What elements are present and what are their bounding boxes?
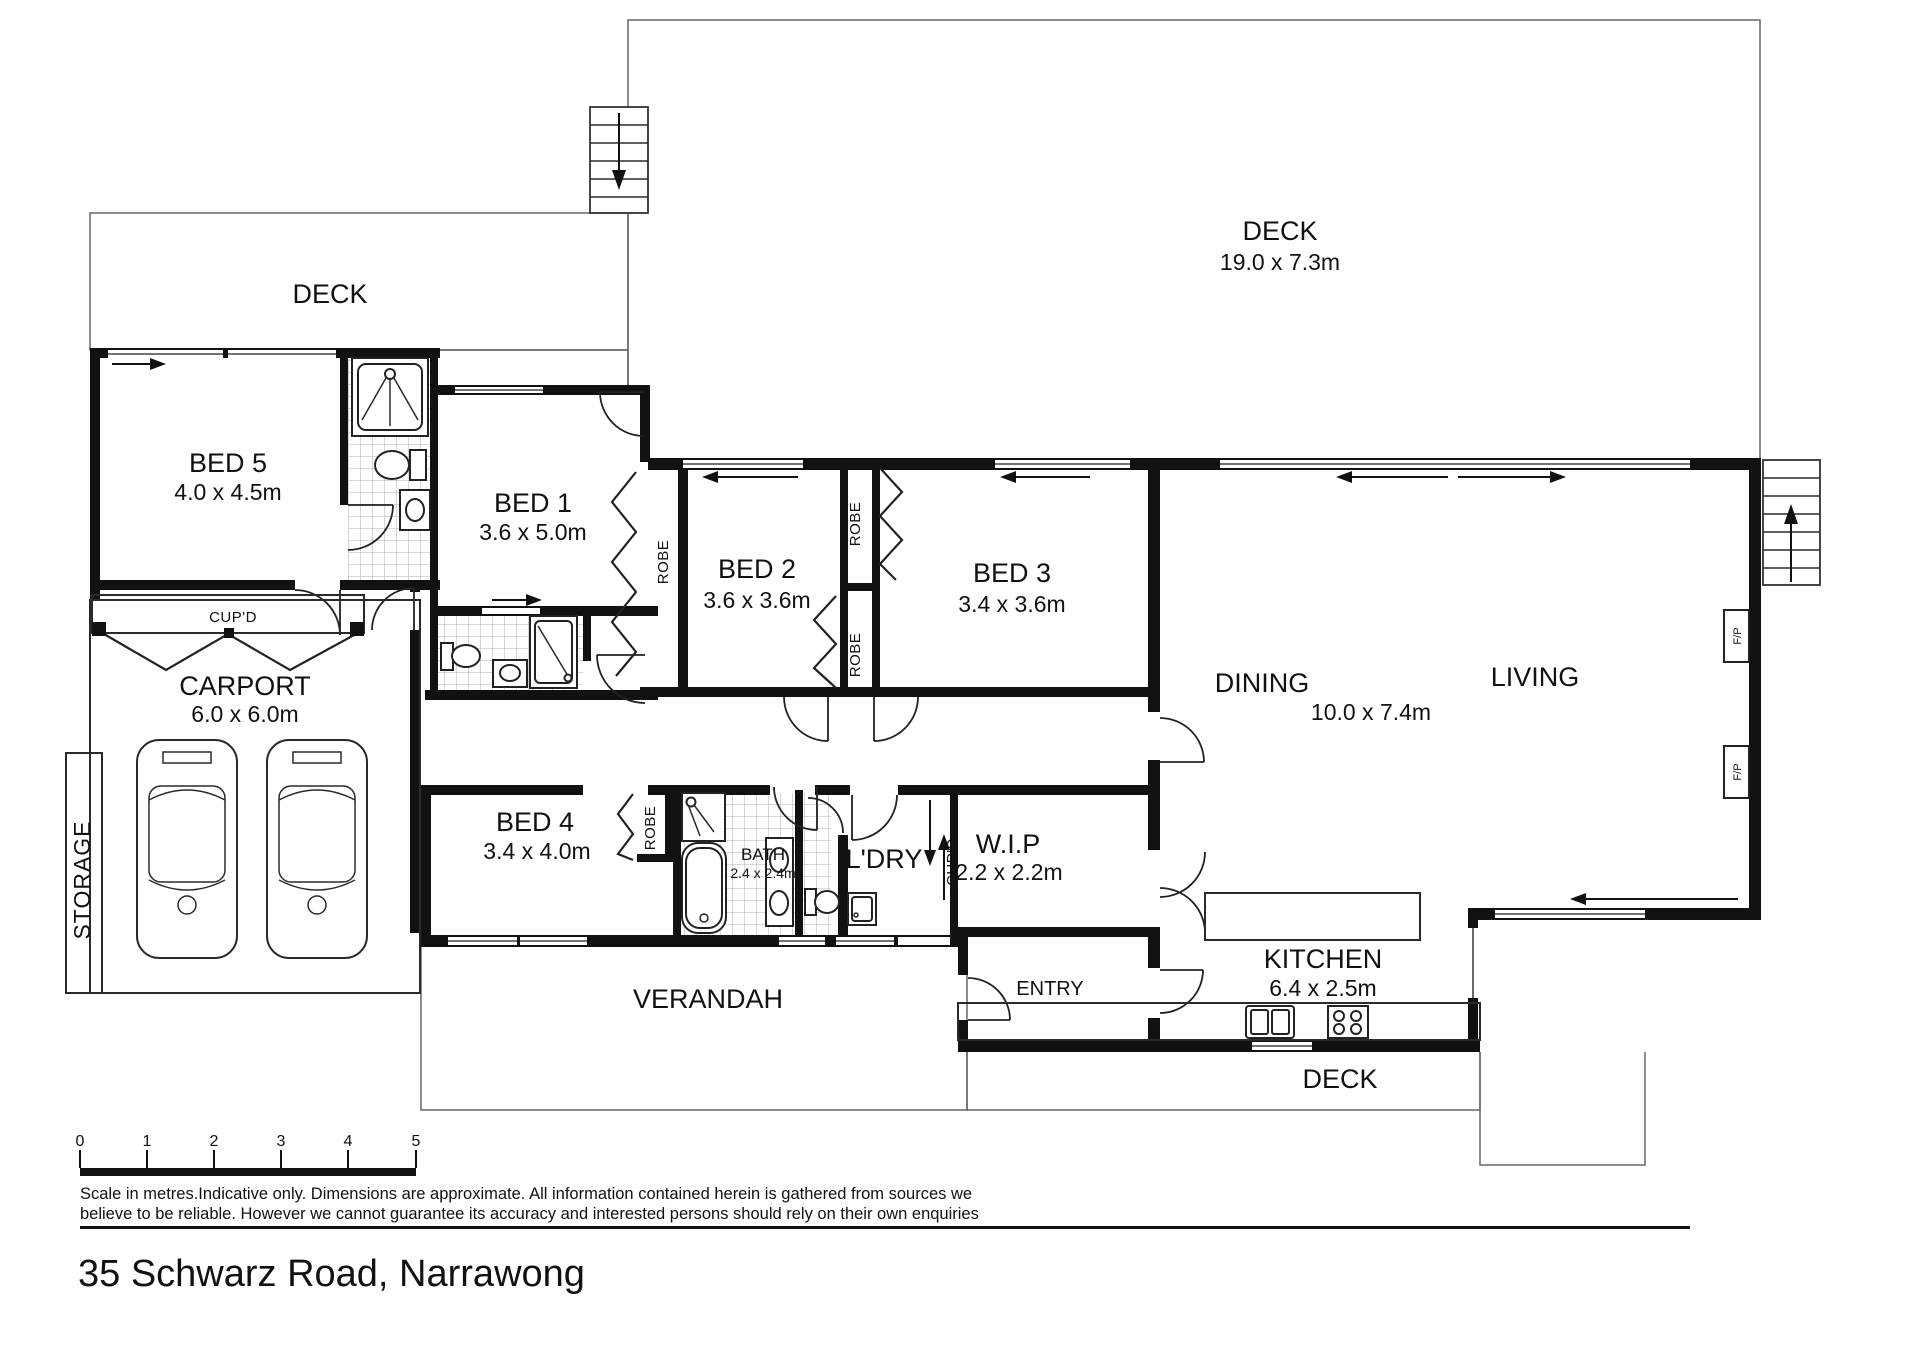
bath-label: BATH <box>741 845 785 864</box>
deck-main-label: DECK <box>1242 216 1317 246</box>
carport <box>66 595 420 993</box>
storage-label: STORAGE <box>69 820 95 939</box>
vanity <box>400 490 430 530</box>
living-label: LIVING <box>1491 662 1580 692</box>
laundry-sink <box>848 893 876 925</box>
scale-tick-5: 5 <box>412 1133 421 1150</box>
verandah-label: VERANDAH <box>633 984 783 1014</box>
toilet <box>441 643 480 670</box>
stove <box>1328 1006 1368 1038</box>
bed4-robe-label: ROBE <box>642 806 659 851</box>
scale-tick-0: 0 <box>76 1133 85 1150</box>
kitchen-dims: 6.4 x 2.5m <box>1269 975 1376 1001</box>
car <box>267 740 367 958</box>
wip-dims: 2.2 x 2.2m <box>955 859 1062 885</box>
bed1-dims: 3.6 x 5.0m <box>479 519 586 545</box>
bed2-robe-label: ROBE <box>847 633 864 678</box>
wip-label: W.I.P <box>976 829 1041 859</box>
shower <box>682 793 725 841</box>
car <box>137 740 237 958</box>
deck-bottom-strip <box>967 1050 1480 1110</box>
fireplace-label-1: F/P <box>1732 627 1744 644</box>
bed4-dims: 3.4 x 4.0m <box>483 838 590 864</box>
deck-main-area <box>628 20 1760 460</box>
entry-label: ENTRY <box>1016 978 1083 1000</box>
bed3-label: BED 3 <box>973 558 1051 588</box>
kitchen-label: KITCHEN <box>1264 944 1383 974</box>
bed5-label: BED 5 <box>189 448 267 478</box>
vanity <box>493 660 527 687</box>
bathtub <box>682 843 726 933</box>
verandah-area <box>421 945 967 1110</box>
shower <box>352 358 428 436</box>
bed1-robe-label: ROBE <box>655 540 672 585</box>
stairs-right <box>1763 460 1820 585</box>
bed4-label: BED 4 <box>496 807 574 837</box>
stairs-top <box>590 107 648 213</box>
dining-label: DINING <box>1215 668 1310 698</box>
toilet <box>805 889 839 915</box>
carport-label: CARPORT <box>179 671 311 701</box>
disclaimer: Scale in metres.Indicative only. Dimensi… <box>80 1185 979 1223</box>
bath-dims: 2.4 x 2.4m <box>730 865 795 881</box>
living-dining-dims: 10.0 x 7.4m <box>1311 699 1431 725</box>
carport-cupd-label: CUP'D <box>209 609 257 626</box>
scale-tick-3: 3 <box>277 1133 286 1150</box>
deck-left-label: DECK <box>292 279 367 309</box>
property-address: 35 Schwarz Road, Narrawong <box>78 1253 585 1295</box>
bed2-label: BED 2 <box>718 554 796 584</box>
ldry-label: L'DRY <box>846 844 923 874</box>
hall-cupd-label: CUP'D <box>944 838 961 886</box>
bed1-label: BED 1 <box>494 488 572 518</box>
scale-tick-2: 2 <box>210 1133 219 1150</box>
fireplace-label-2: F/P <box>1732 763 1744 780</box>
deck-main-dims: 19.0 x 7.3m <box>1220 249 1340 275</box>
shower <box>530 616 577 688</box>
floor-plan-svg: DECK DECK 19.0 x 7.3m BED 5 4.0 x 4.5m B… <box>0 0 1920 1357</box>
toilet <box>375 450 426 480</box>
scale-tick-1: 1 <box>143 1133 152 1150</box>
kitchen-sink <box>1246 1006 1294 1038</box>
disclaimer-line-1: Scale in metres.Indicative only. Dimensi… <box>80 1185 972 1203</box>
bed5-dims: 4.0 x 4.5m <box>174 479 281 505</box>
bed2-dims: 3.6 x 3.6m <box>703 587 810 613</box>
scale-bar: 0 1 2 3 4 5 <box>76 1133 421 1176</box>
deck-bottom-label: DECK <box>1302 1064 1377 1094</box>
carport-dims: 6.0 x 6.0m <box>191 701 298 727</box>
disclaimer-line-2: believe to be reliable. However we canno… <box>80 1205 979 1223</box>
floor-plan-page: DECK DECK 19.0 x 7.3m BED 5 4.0 x 4.5m B… <box>0 0 1920 1357</box>
footer-divider <box>80 1226 1690 1229</box>
carport-cupboard-doors <box>104 634 356 670</box>
deck-bed1-strip <box>438 350 628 387</box>
bed3-dims: 3.4 x 3.6m <box>958 591 1065 617</box>
bed3-robe-label: ROBE <box>847 502 864 547</box>
scale-tick-4: 4 <box>344 1133 353 1150</box>
